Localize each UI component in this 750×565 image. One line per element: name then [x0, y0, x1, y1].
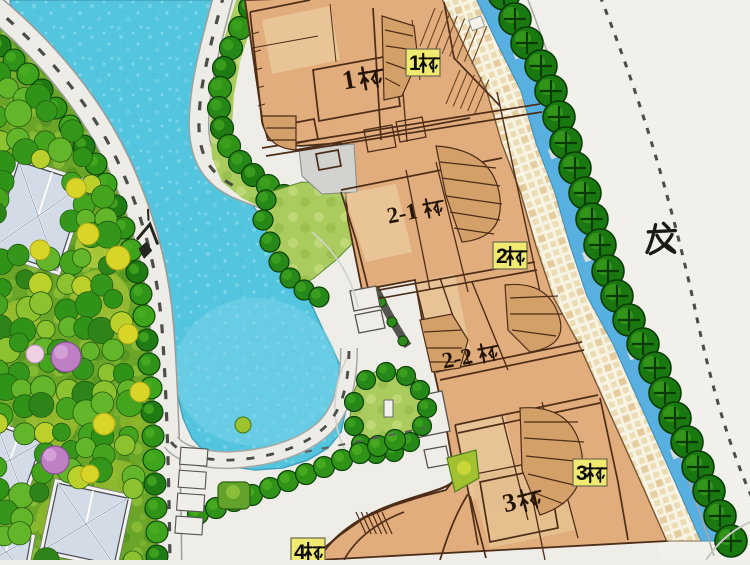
svg-text:2: 2	[496, 245, 508, 268]
svg-text:1: 1	[409, 52, 421, 75]
svg-text:3: 3	[576, 462, 588, 485]
svg-text:4: 4	[294, 541, 306, 560]
